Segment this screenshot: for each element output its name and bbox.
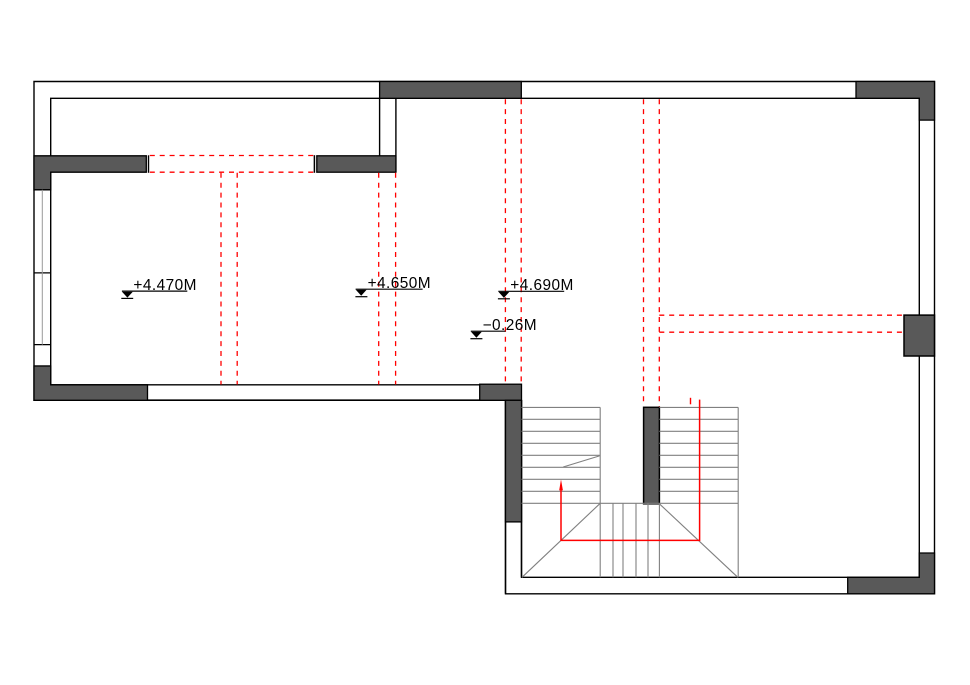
svg-text:+4.650M: +4.650M	[368, 275, 431, 292]
svg-text:+4.690M: +4.690M	[510, 277, 573, 294]
svg-text:−0.26M: −0.26M	[483, 317, 537, 334]
svg-text:+4.470M: +4.470M	[133, 277, 196, 294]
